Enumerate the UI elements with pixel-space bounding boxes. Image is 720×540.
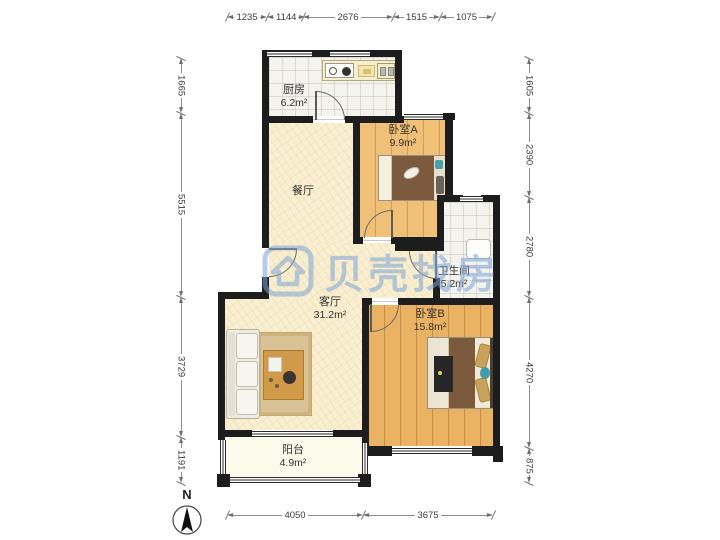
cutting-board	[358, 65, 375, 77]
window	[404, 114, 443, 120]
wall-segment	[398, 298, 500, 305]
room-label-bedroom-a: 卧室A9.9m²	[373, 124, 433, 150]
dim-arrow-icon	[179, 477, 183, 483]
wall-segment	[262, 116, 313, 123]
wall-segment	[437, 202, 444, 251]
detail: 4050	[282, 510, 307, 521]
room-dining-floor	[269, 123, 353, 243]
dim-right-3: 2780	[523, 197, 535, 297]
detail: 2780	[524, 234, 535, 259]
detail: 1235	[234, 12, 259, 23]
detail	[388, 67, 395, 76]
detail	[363, 69, 371, 74]
dim-right-5: 875	[523, 448, 535, 483]
detail	[228, 332, 235, 416]
dim-line	[181, 380, 182, 431]
wall-segment	[225, 430, 252, 437]
detail	[380, 67, 387, 76]
dim-line	[361, 17, 387, 18]
dim-bottom-1: 4050	[227, 510, 363, 520]
window	[220, 440, 226, 474]
dim-line	[529, 203, 530, 234]
door-threshold	[372, 301, 398, 302]
detail: 卧室B	[398, 308, 462, 321]
window	[460, 196, 483, 202]
dim-line	[529, 64, 530, 73]
dim-top-1: 1235	[227, 12, 267, 22]
detail	[480, 367, 490, 379]
door-threshold	[363, 240, 391, 241]
dim-line	[181, 119, 182, 192]
wall-segment	[362, 298, 369, 452]
detail: 15.8m²	[398, 321, 462, 334]
wall-segment	[262, 50, 269, 248]
wall-segment	[353, 116, 360, 243]
detail: 2676	[335, 12, 360, 23]
dim-arrow-icon	[487, 15, 493, 19]
room-label-dining: 餐厅	[281, 185, 325, 198]
wall-segment	[333, 430, 362, 437]
detail: 875	[524, 456, 535, 476]
dim-line	[529, 168, 530, 191]
dim-line	[233, 515, 282, 516]
detail	[436, 176, 444, 194]
window	[230, 477, 360, 483]
dim-line	[479, 17, 487, 18]
room-label-living: 客厅31.2m²	[298, 296, 362, 322]
dim-arrow-icon	[487, 513, 493, 517]
bedroom-b-door-leaf	[370, 304, 372, 332]
dim-right-4: 4270	[523, 297, 535, 448]
stove	[325, 63, 354, 78]
detail: 3675	[415, 510, 440, 521]
wall-segment	[218, 292, 269, 299]
detail: 餐厅	[281, 185, 325, 198]
dim-top-3: 2676	[303, 12, 393, 22]
detail: 客厅	[298, 296, 362, 309]
detail: 31.2m²	[298, 309, 362, 322]
bathtub	[466, 239, 491, 259]
wall-segment	[445, 113, 453, 202]
sofa-cushion	[236, 389, 258, 415]
dim-top-2: 1144	[267, 12, 303, 22]
dim-left-3: 3729	[175, 297, 187, 437]
dim-line	[529, 260, 530, 291]
burner-icon	[329, 67, 337, 75]
kettle	[283, 371, 296, 384]
detail: 1075	[454, 12, 479, 23]
bed-duvet	[392, 156, 434, 200]
detail	[438, 371, 442, 375]
burner-icon	[342, 67, 351, 76]
detail: 9.9m²	[373, 137, 433, 150]
window	[267, 51, 312, 57]
dim-top-5: 1075	[440, 12, 493, 22]
wall-segment	[391, 237, 437, 244]
detail: 4.9m²	[268, 457, 318, 470]
dim-right-2: 2390	[523, 113, 535, 197]
bed-pillow	[435, 160, 443, 169]
window	[252, 431, 333, 437]
entry-door-leaf	[269, 248, 297, 250]
coffee-table	[263, 350, 304, 400]
detail: N	[168, 486, 206, 538]
detail: 卫生间	[423, 265, 485, 278]
wall-segment	[217, 474, 230, 487]
detail: 5.2m²	[423, 278, 485, 291]
dim-line	[181, 64, 182, 73]
room-label-bedroom-b: 卧室B15.8m²	[398, 308, 462, 334]
wall-segment	[395, 50, 402, 120]
detail: 卧室A	[373, 124, 433, 137]
detail: 3729	[176, 354, 187, 379]
window	[392, 448, 472, 454]
detail: 厨房	[264, 84, 324, 97]
dim-line	[441, 515, 487, 516]
detail: 1144	[274, 12, 298, 23]
tv-unit	[434, 356, 453, 392]
dim-right-1: 1605	[523, 58, 535, 113]
detail	[275, 384, 279, 388]
wall-segment	[493, 195, 500, 462]
dim-line	[529, 119, 530, 142]
bed-bedroom-b	[427, 337, 493, 409]
window	[330, 51, 370, 57]
wall-segment	[353, 237, 363, 244]
detail: 2390	[524, 142, 535, 167]
detail: 5515	[176, 192, 187, 217]
bedroom-a-door-leaf	[391, 210, 393, 238]
detail: 1515	[404, 12, 429, 23]
dim-bottom-2: 3675	[363, 510, 493, 520]
kitchen-counter	[322, 60, 396, 81]
sofa-cushion	[236, 333, 258, 359]
dim-line	[309, 17, 335, 18]
dim-line	[529, 385, 530, 442]
detail: 1605	[524, 73, 535, 98]
dim-line	[181, 98, 182, 107]
detail: 6.2m²	[264, 97, 324, 110]
wall-segment	[493, 446, 503, 462]
dim-top-4: 1515	[393, 12, 440, 22]
detail: 4270	[524, 360, 535, 385]
sofa	[226, 329, 260, 419]
sofa-cushion	[236, 361, 258, 387]
detail: 阳台	[268, 444, 318, 457]
wall-segment	[395, 244, 437, 251]
dim-line	[308, 515, 357, 516]
wall-segment	[218, 299, 225, 440]
dim-line	[181, 303, 182, 354]
dim-left-2: 5515	[175, 113, 187, 297]
dim-arrow-icon	[527, 477, 531, 483]
dim-line	[181, 218, 182, 291]
compass: N	[168, 486, 206, 538]
room-label-bathroom: 卫生间5.2m²	[423, 265, 485, 290]
room-label-balcony: 阳台4.9m²	[268, 444, 318, 470]
dim-line	[446, 17, 454, 18]
compass-n-label: N	[182, 487, 191, 502]
dim-left-1: 1665	[175, 58, 187, 113]
kitchen-sink	[377, 63, 395, 79]
detail: 1191	[176, 448, 187, 472]
dim-left-4: 1191	[175, 437, 187, 483]
dim-line	[529, 98, 530, 107]
floor-plan-canvas: 厨房6.2m² 卧室A9.9m² 餐厅 卫生间5.2m² 客厅31.2m² 卧室…	[0, 0, 720, 540]
notepad	[268, 357, 282, 372]
window	[362, 443, 368, 474]
compass-needle-icon	[181, 507, 193, 532]
dim-line	[529, 303, 530, 360]
detail	[379, 156, 392, 200]
detail	[269, 378, 273, 382]
detail: 1665	[176, 73, 187, 98]
dim-line	[369, 515, 415, 516]
room-label-kitchen: 厨房6.2m²	[264, 84, 324, 110]
